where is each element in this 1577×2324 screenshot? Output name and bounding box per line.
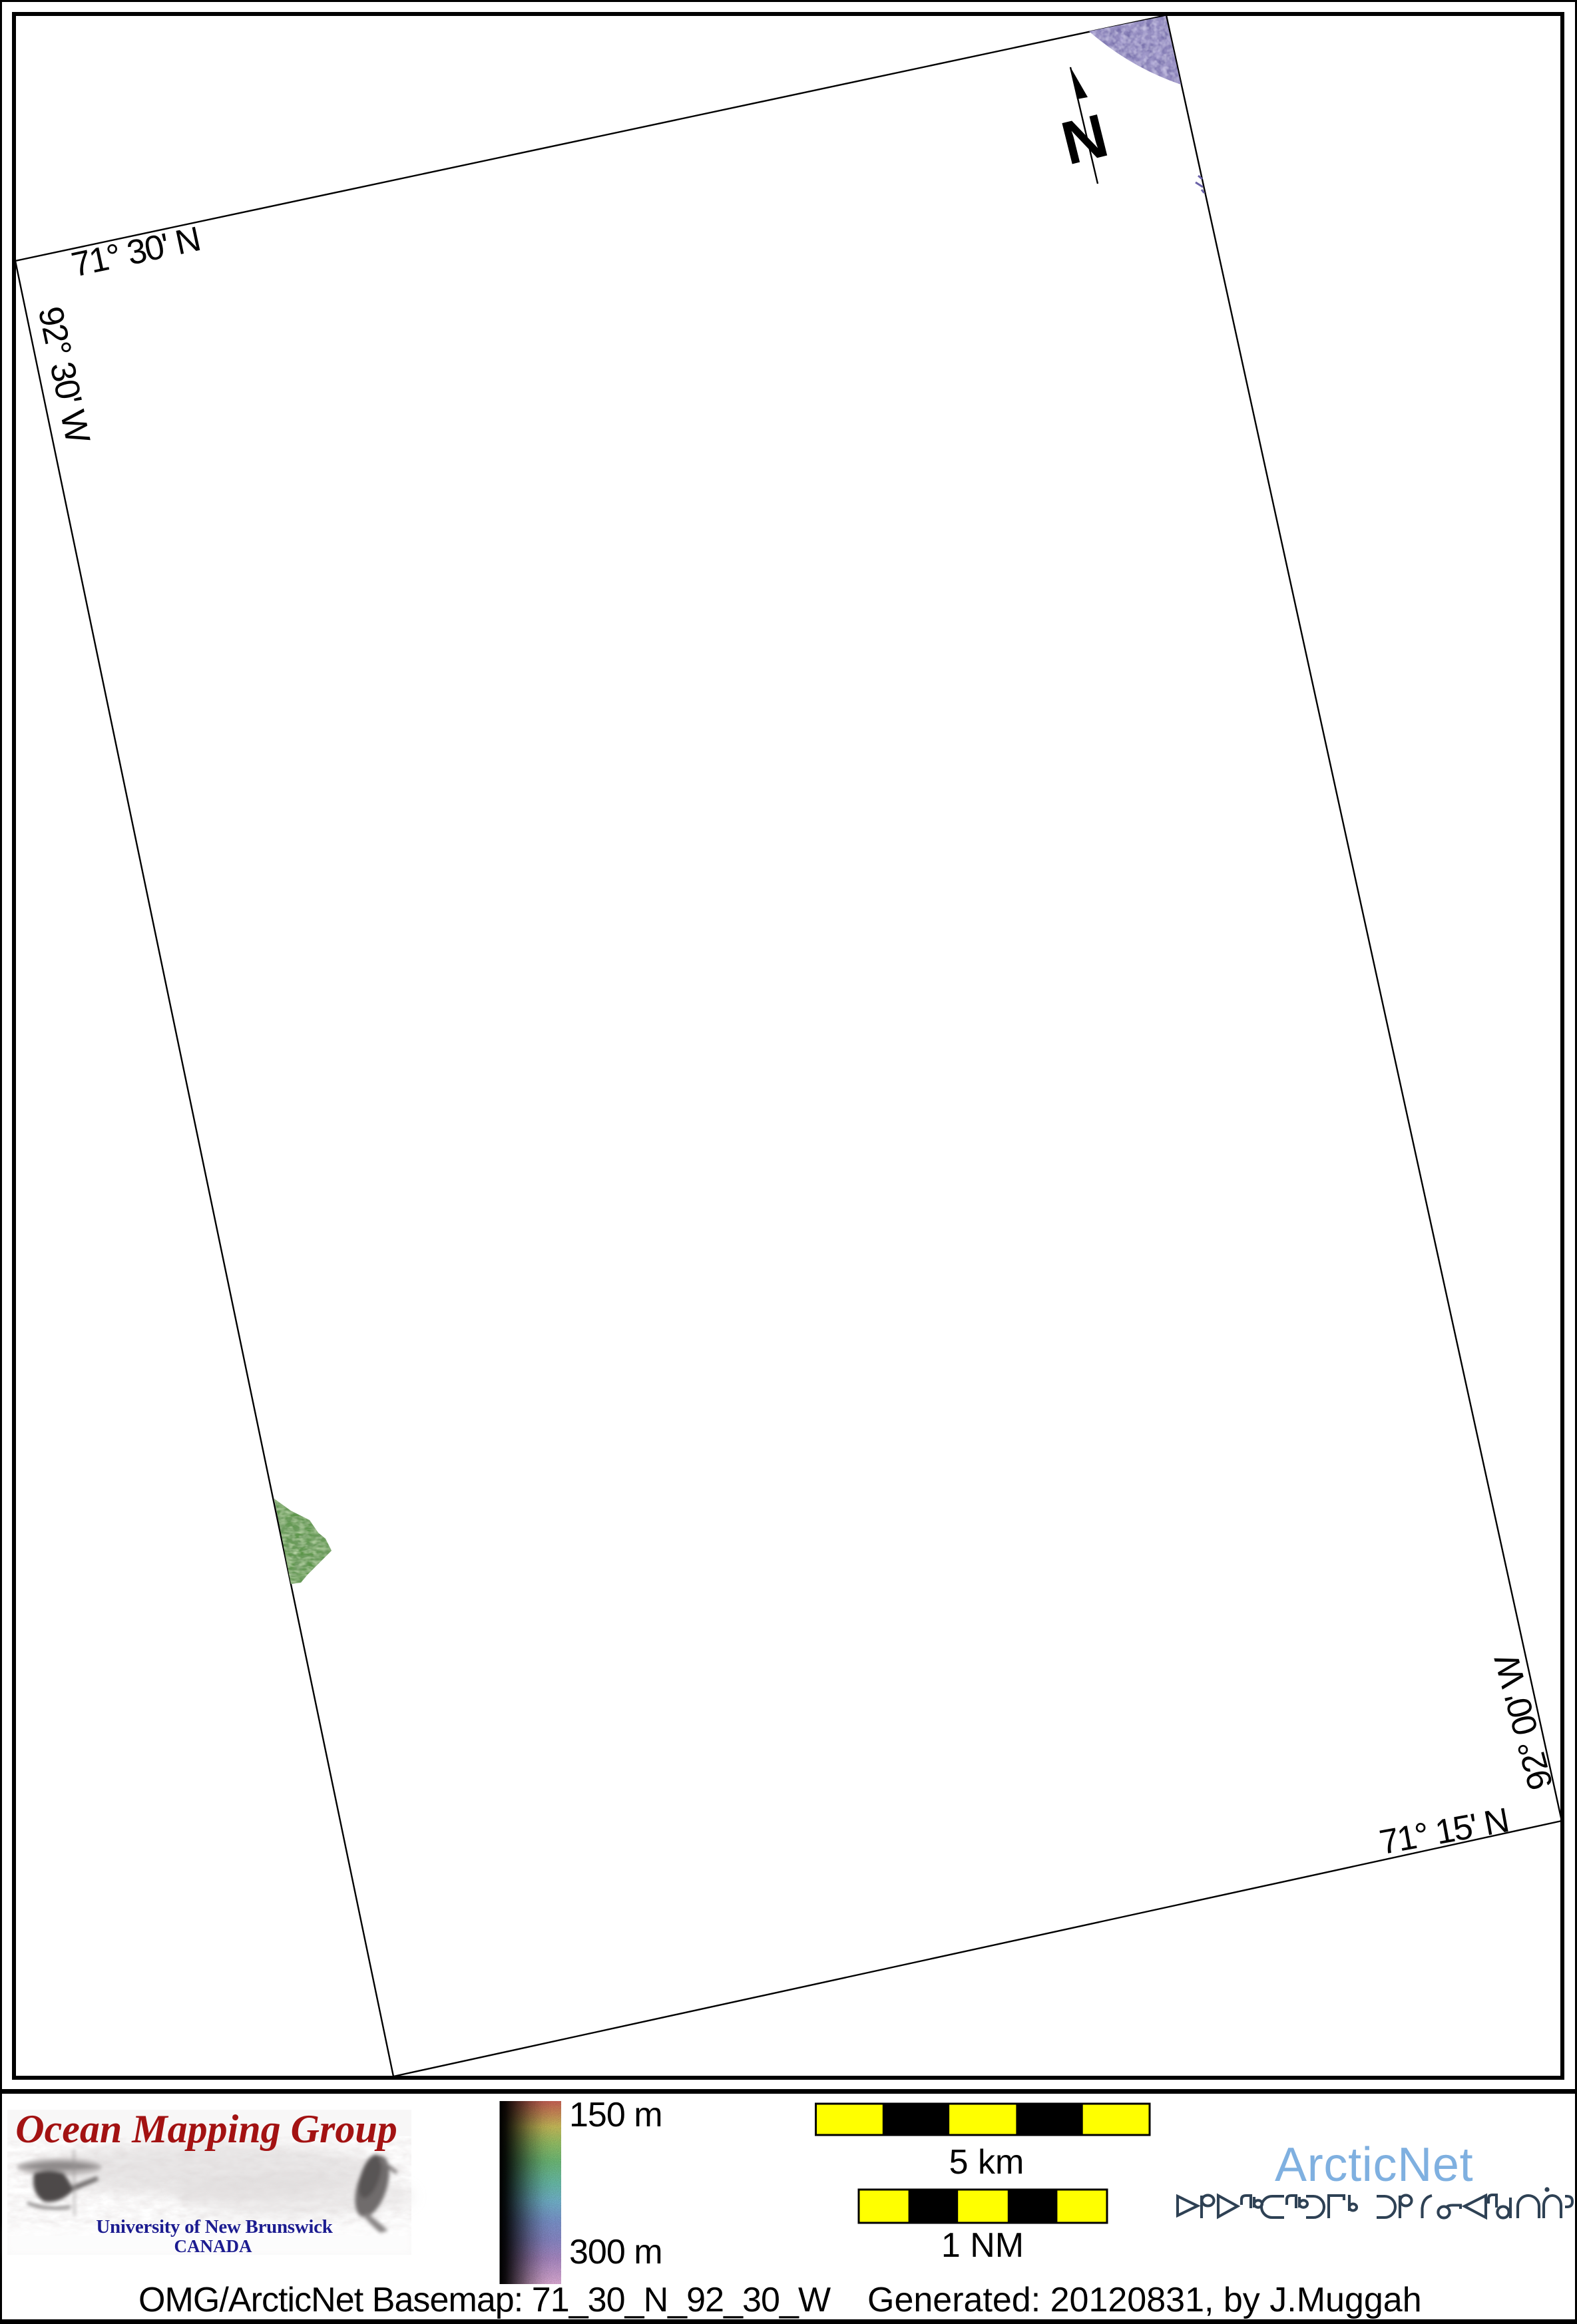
svg-text:OMG/ArcticNet Basemap: 71_30_N: OMG/ArcticNet Basemap: 71_30_N_92_30_W (138, 2281, 831, 2319)
svg-text:University of New Brunswick: University of New Brunswick (96, 2216, 333, 2237)
svg-text:ArcticNet: ArcticNet (1275, 2138, 1473, 2192)
svg-text:1 NM: 1 NM (941, 2226, 1024, 2265)
svg-text:5 km: 5 km (949, 2143, 1024, 2182)
svg-text:Generated: 20120831, by J.Mugg: Generated: 20120831, by J.Muggah (867, 2281, 1422, 2319)
svg-text:Ocean Mapping Group: Ocean Mapping Group (15, 2107, 397, 2151)
svg-text:CANADA: CANADA (174, 2236, 252, 2256)
svg-text:150 m: 150 m (569, 2096, 662, 2134)
svg-text:300 m: 300 m (569, 2233, 662, 2271)
